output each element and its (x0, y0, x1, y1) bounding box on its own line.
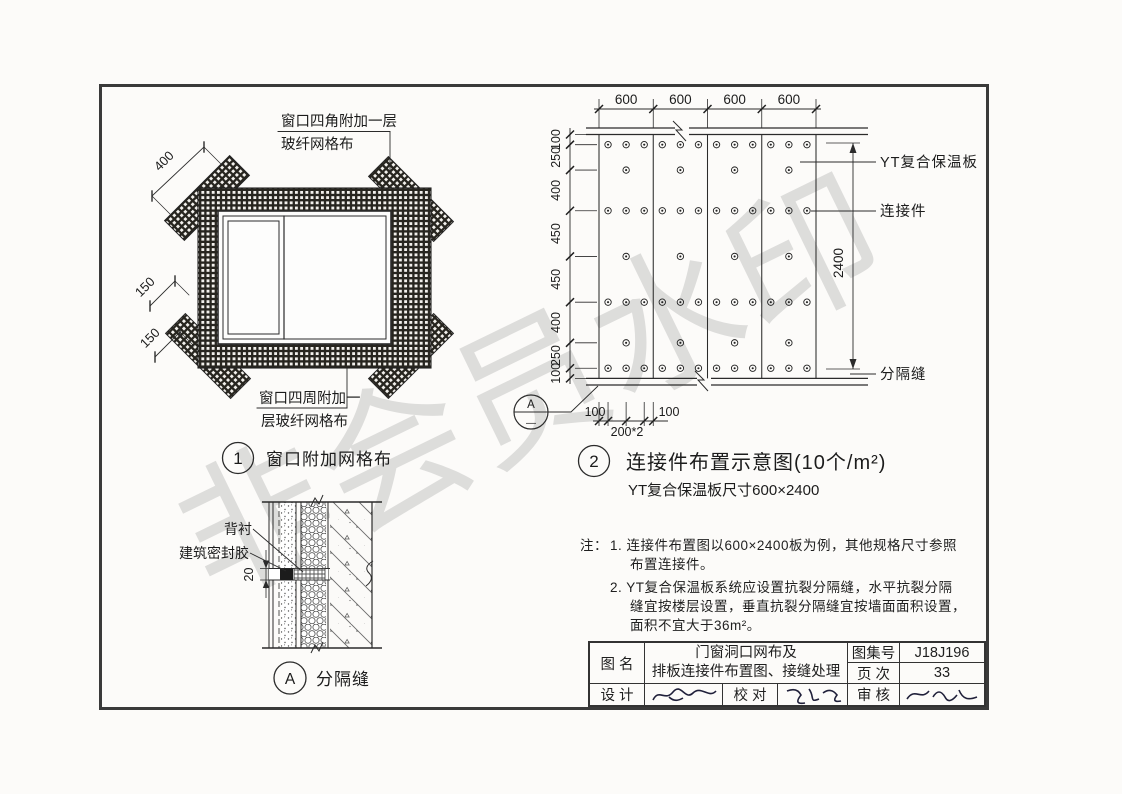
dim-top-600: 600 (615, 92, 638, 107)
dim-bottom-200x2: 200*2 (611, 425, 644, 439)
design-signature-scribble (649, 685, 719, 705)
note-line: 缝宜按楼层设置，垂直抗裂分隔缝宜按墙面面积设置， (630, 595, 966, 615)
fig-name-value: 门窗洞口网布及 排板连接件布置图、接缝处理 (645, 643, 848, 683)
dim-left: 450 (549, 269, 563, 290)
diagram1-title: 窗口附加网格布 (266, 450, 392, 469)
detail-number-2: 2 (589, 452, 598, 471)
atlas-number-label: 图集号 (848, 643, 900, 663)
dim-bottom-100-left: 100 (585, 405, 606, 419)
review-signature (900, 683, 984, 705)
label-backing: 背衬 (224, 521, 252, 537)
perimeter-note-line2: 层玻纤网格布 (261, 413, 348, 430)
note-line: 布置连接件。 (630, 553, 714, 573)
detail-number-1: 1 (233, 449, 242, 468)
dim-left: 250 (549, 345, 563, 366)
note-line: 面积不宜大于36m²。 (630, 614, 761, 634)
fig-name-line1: 门窗洞口网布及 (652, 644, 841, 663)
label-separation-joint: 分隔缝 (880, 366, 927, 383)
dim-top-600: 600 (723, 92, 746, 107)
detailA-title: 分隔缝 (316, 670, 370, 689)
drawing-sheet: 非会员水印 (0, 0, 1122, 794)
dim-label-400: 400 (151, 148, 177, 174)
label-insulation-board: YT复合保温板 (880, 153, 978, 171)
corner-note-line2: 玻纤网格布 (281, 136, 354, 153)
window-mesh-diagram: 400 150 150 窗口四角附加一层 玻纤网格布 (132, 112, 454, 474)
wall-edge-bottom (586, 371, 868, 391)
dim-left: 100 (549, 129, 563, 150)
perimeter-note-line1: 窗口四周附加一 (259, 389, 361, 407)
check-signature-scribble (781, 685, 845, 705)
dim-label-150b: 150 (137, 325, 163, 351)
backing-rod (294, 569, 325, 581)
wall-edge-top (586, 121, 868, 141)
callout-page-dash: — (526, 418, 536, 429)
dim-label-20: 20 (242, 568, 256, 582)
connector-layout-diagram: 600600600600100250400450450400250100 240… (514, 92, 978, 499)
review-label: 审 核 (848, 683, 900, 705)
page-number-label: 页 次 (848, 663, 900, 683)
dim-left: 250 (549, 147, 563, 168)
dim-label-150a: 150 (132, 274, 158, 300)
separation-joint-detail: 20 背衬 建筑密封胶 A 分隔缝 (179, 495, 382, 694)
sealant-block (280, 569, 293, 581)
diagram2-title: 连接件布置示意图(10个/m²) (626, 451, 886, 474)
dim-left: 400 (549, 180, 563, 201)
dim-bottom-100-right: 100 (659, 405, 680, 419)
callout-letter: A (527, 399, 535, 411)
diagram2-subtitle: YT复合保温板尺寸600×2400 (628, 481, 819, 499)
boards-and-connectors: 600600600600100250400450450400250100 (549, 92, 821, 426)
title-block: 图 名 门窗洞口网布及 排板连接件布置图、接缝处理 图集号 J18J196 页 … (588, 641, 986, 707)
label-sealant: 建筑密封胶 (179, 545, 249, 561)
detail-letter: A (285, 671, 296, 688)
page-number-value: 33 (900, 663, 984, 683)
check-label: 校 对 (723, 683, 778, 705)
dim-left: 450 (549, 223, 563, 244)
design-label: 设 计 (590, 683, 645, 705)
dim-top-600: 600 (778, 92, 801, 107)
label-connector: 连接件 (880, 203, 927, 220)
dim-top-600: 600 (669, 92, 692, 107)
fig-name-label: 图 名 (590, 643, 645, 683)
design-signature (645, 683, 723, 705)
review-signature-scribble (903, 685, 981, 705)
dim-left: 100 (549, 363, 563, 384)
notes-prefix: 注： (580, 534, 608, 554)
atlas-number-value: J18J196 (900, 643, 984, 663)
check-signature (778, 683, 848, 705)
note-line: 2. YT复合保温板系统应设置抗裂分隔缝，水平抗裂分隔 (610, 576, 953, 596)
dim-label-2400: 2400 (831, 248, 846, 278)
corner-note-line1: 窗口四角附加一层 (281, 112, 397, 130)
concrete-wall-layer (330, 502, 372, 648)
window (218, 211, 391, 344)
note-line: 1. 连接件布置图以600×2400板为例，其他规格尺寸参照 (610, 534, 957, 554)
fig-name-line2: 排板连接件布置图、接缝处理 (652, 663, 841, 682)
dim-left: 400 (549, 312, 563, 333)
